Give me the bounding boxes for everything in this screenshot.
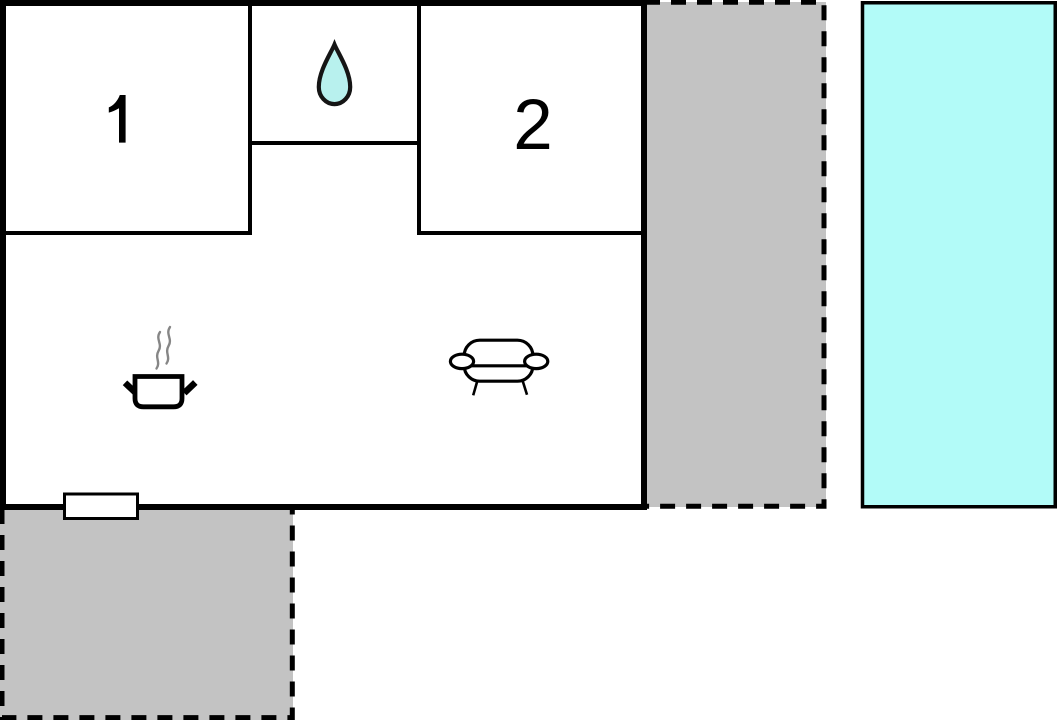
svg-text:2: 2 xyxy=(513,86,553,165)
